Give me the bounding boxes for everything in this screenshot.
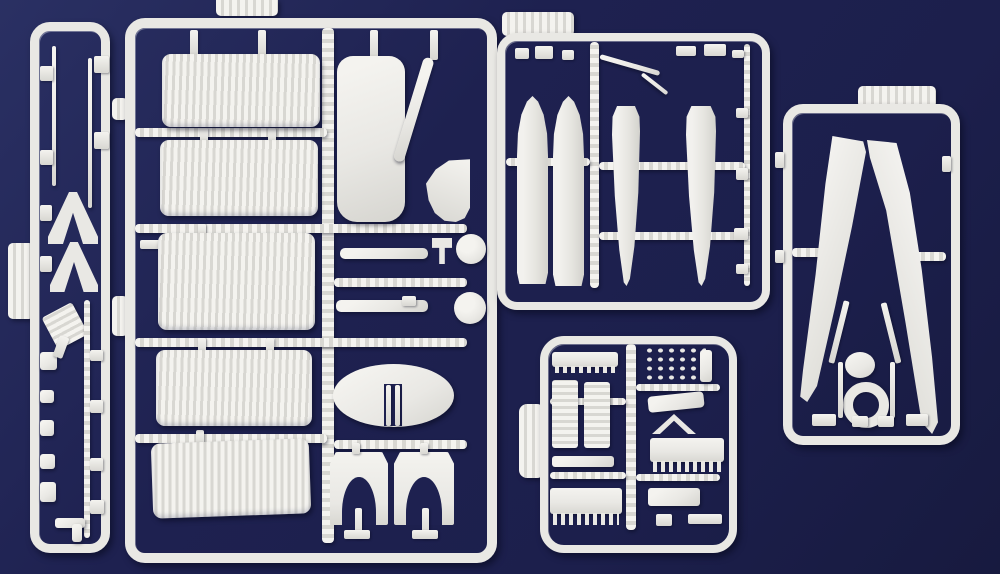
arch-foot [344,530,370,539]
runner [550,472,626,479]
small-fitting [90,400,103,413]
cowl-strip [340,248,428,259]
arch-foot [412,530,438,539]
runner [135,338,467,347]
top-tab [216,0,278,16]
l-shaped-fitting [72,524,82,542]
bracket [648,488,700,506]
foot [852,416,868,427]
cylinder-bank [550,488,622,514]
small-fitting [90,500,104,514]
sprue-photo-scene [0,0,1000,574]
hub-part [845,352,875,378]
cylinder-bank [552,352,618,367]
corrugated-wing-panel [156,350,312,426]
small-fitting [90,458,103,471]
cylinder-bank [584,382,610,448]
corrugated-wing-panel [160,140,318,216]
runner [334,278,467,287]
cylinder-bank [650,438,724,462]
small-fitting [94,56,109,73]
foot [906,414,928,426]
small-clip [676,46,696,56]
cylinder-bank [552,380,578,448]
outer-wing-panel [337,56,405,222]
oval-post [386,385,391,426]
small-fitting [40,390,54,403]
engine-disc [454,292,486,324]
small-fitting [40,482,56,502]
small-fitting [688,514,722,524]
small-fitting [40,256,52,272]
side-stub [942,156,951,172]
small-clip [736,264,748,274]
small-fitting [90,350,103,361]
small-fitting [656,514,672,526]
small-clip [732,50,744,58]
runner [636,384,720,391]
strut-bar [890,362,895,418]
bracket [700,350,712,382]
strut-bar [838,362,843,418]
small-clip [736,108,748,118]
small-fitting [40,150,53,165]
side-stub [775,250,784,263]
runner [135,224,467,233]
side-stub [775,152,784,168]
bracket [552,456,614,467]
foot [878,416,894,427]
corrugated-wing-panel [158,233,315,330]
wing-strut [88,58,92,208]
runner [636,474,720,481]
small-clip [562,50,574,60]
small-fitting [40,205,52,221]
float-half [517,96,548,284]
small-clip [736,168,748,180]
sprue-gate [352,443,360,454]
small-fitting [94,132,109,149]
inner-runner [590,42,599,288]
oval-post [395,385,400,426]
foot [812,414,836,426]
engine-disc [456,234,486,264]
small-fitting [40,66,53,81]
small-fitting [40,454,55,469]
sprue-gate [420,443,428,454]
corrugated-wing-panel [151,438,312,518]
small-clip [704,44,726,56]
float-half [553,96,584,286]
small-fitting [40,420,54,436]
sprue-gate [430,30,438,60]
small-clip [515,48,529,59]
inner-runner [626,344,636,530]
runner [135,128,327,137]
corrugated-wing-panel [162,54,320,127]
radiator-grid [644,346,706,380]
small-clip [535,46,553,59]
small-clip [734,228,748,240]
sprue-gate [140,240,160,249]
small-fitting [402,296,416,306]
sprue-frame [30,22,110,553]
